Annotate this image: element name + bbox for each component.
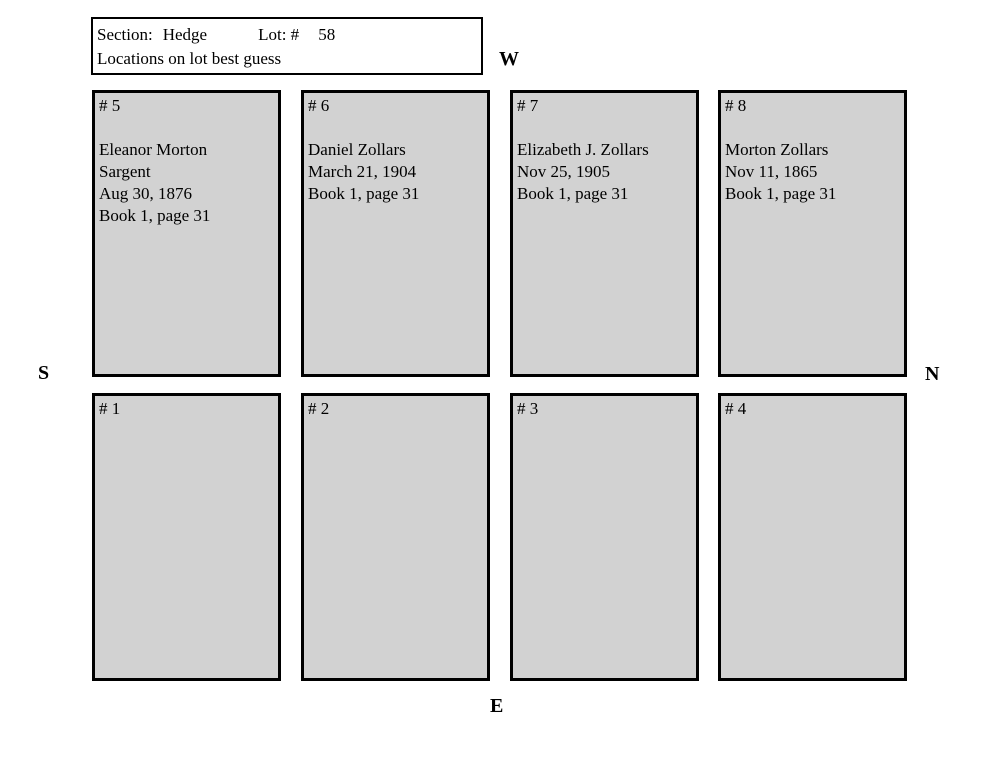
plot-detail-line: March 21, 1904 — [308, 161, 483, 183]
plot-detail-line: Sargent — [99, 161, 274, 183]
plot-7: # 7 Elizabeth J. Zollars Nov 25, 1905 Bo… — [510, 90, 699, 377]
plot-8-details: Morton Zollars Nov 11, 1865 Book 1, page… — [725, 139, 900, 205]
plot-5-details: Eleanor Morton Sargent Aug 30, 1876 Book… — [99, 139, 274, 227]
header-note: Locations on lot best guess — [97, 47, 477, 71]
plot-detail-line: Book 1, page 31 — [308, 183, 483, 205]
lot-number: 58 — [318, 25, 335, 44]
plot-5: # 5 Eleanor Morton Sargent Aug 30, 1876 … — [92, 90, 281, 377]
plot-4: # 4 — [718, 393, 907, 681]
plot-detail-line: Eleanor Morton — [99, 139, 274, 161]
header-box: Section:HedgeLot: #58 Locations on lot b… — [91, 17, 483, 75]
plot-8-number: # 8 — [725, 95, 900, 117]
plot-2-number: # 2 — [308, 398, 483, 420]
plot-1: # 1 — [92, 393, 281, 681]
header-line-section-lot: Section:HedgeLot: #58 — [97, 23, 477, 47]
plot-1-number: # 1 — [99, 398, 274, 420]
plot-detail-line: Book 1, page 31 — [517, 183, 692, 205]
compass-south-label: S — [38, 363, 49, 383]
plot-detail-line: Nov 25, 1905 — [517, 161, 692, 183]
plot-5-number: # 5 — [99, 95, 274, 117]
plot-7-details: Elizabeth J. Zollars Nov 25, 1905 Book 1… — [517, 139, 692, 205]
lot-label: Lot: # — [258, 25, 299, 44]
cemetery-lot-map: Section:HedgeLot: #58 Locations on lot b… — [0, 0, 1000, 773]
compass-east-label: E — [490, 696, 503, 716]
plot-detail-line: Book 1, page 31 — [725, 183, 900, 205]
compass-north-label: N — [925, 364, 939, 384]
section-label: Section: — [97, 25, 153, 44]
plot-7-number: # 7 — [517, 95, 692, 117]
plot-8: # 8 Morton Zollars Nov 11, 1865 Book 1, … — [718, 90, 907, 377]
plot-2: # 2 — [301, 393, 490, 681]
plot-detail-line: Aug 30, 1876 — [99, 183, 274, 205]
plot-3-number: # 3 — [517, 398, 692, 420]
compass-west-label: W — [499, 49, 519, 69]
plot-6: # 6 Daniel Zollars March 21, 1904 Book 1… — [301, 90, 490, 377]
plot-detail-line: Daniel Zollars — [308, 139, 483, 161]
plot-6-number: # 6 — [308, 95, 483, 117]
plot-6-details: Daniel Zollars March 21, 1904 Book 1, pa… — [308, 139, 483, 205]
plot-detail-line: Elizabeth J. Zollars — [517, 139, 692, 161]
plot-3: # 3 — [510, 393, 699, 681]
plot-detail-line: Nov 11, 1865 — [725, 161, 900, 183]
plot-4-number: # 4 — [725, 398, 900, 420]
section-value: Hedge — [163, 25, 207, 44]
plot-detail-line: Book 1, page 31 — [99, 205, 274, 227]
plot-detail-line: Morton Zollars — [725, 139, 900, 161]
